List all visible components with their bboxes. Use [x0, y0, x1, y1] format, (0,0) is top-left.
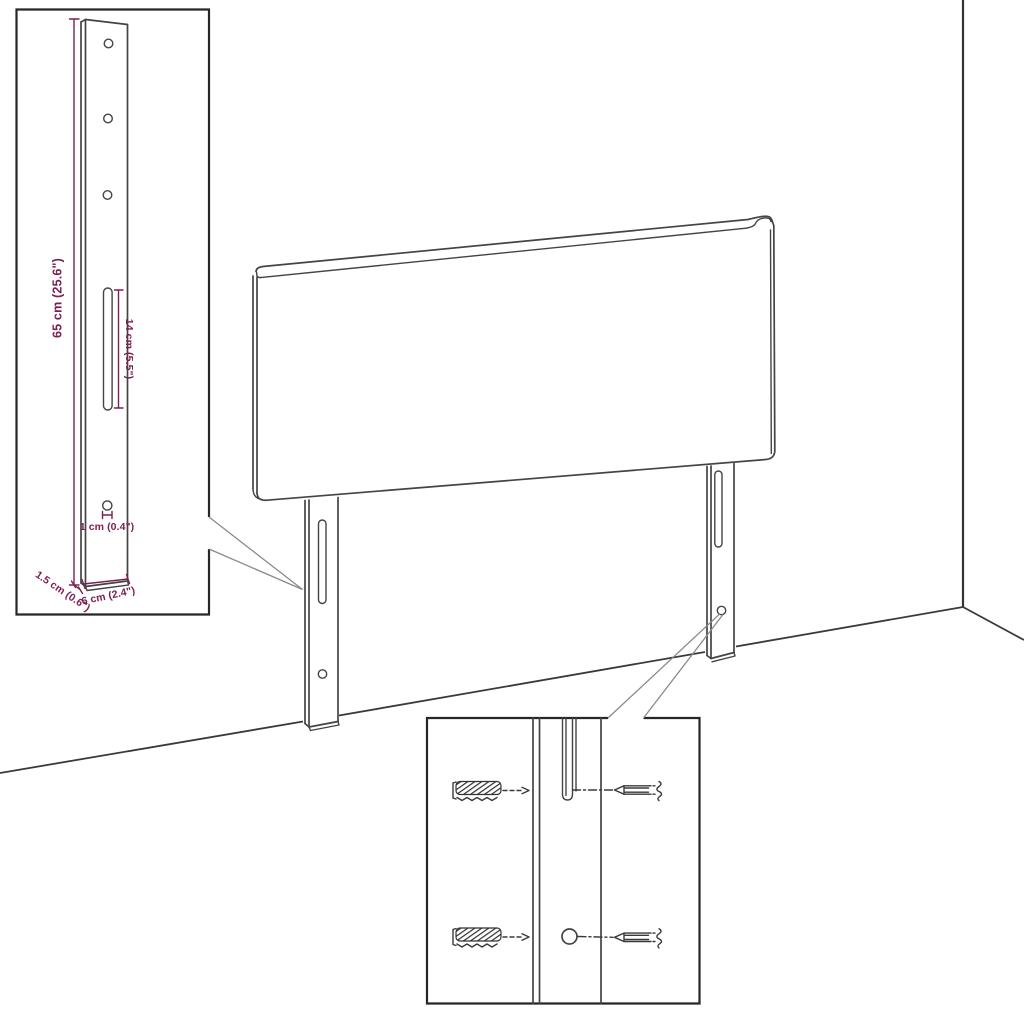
- wall-anchor-lower-icon: [453, 928, 529, 947]
- hardware-inset-frame: [427, 718, 700, 1004]
- hardware-inset-slot: [563, 718, 577, 800]
- left-mounting-leg: [305, 498, 339, 731]
- leg-detail-slot: [104, 288, 113, 410]
- hole-dimension-line: [103, 512, 113, 519]
- leg-detail-drawing: [81, 20, 129, 591]
- dimension-label-slot-length: 14 cm (5.5"): [123, 319, 135, 379]
- room-corner-lines: [0, 0, 1024, 773]
- slot-dimension-line: [115, 290, 124, 408]
- right-leg-hole: [717, 606, 725, 614]
- lower-anchor-and-screw: [453, 928, 662, 948]
- leg-detail-small-hole: [103, 501, 112, 510]
- assembly-diagram: 65 cm (25.6") 14 cm (5.5") 1 cm (0.4") 1…: [0, 0, 1024, 1024]
- assembly-diagram-page: 65 cm (25.6") 14 cm (5.5") 1 cm (0.4") 1…: [0, 0, 1024, 1024]
- leg-detail-inset: 65 cm (25.6") 14 cm (5.5") 1 cm (0.4") 1…: [17, 10, 303, 615]
- leg-detail-hole-1: [104, 39, 113, 48]
- anchor-upper-arrow: [522, 787, 529, 793]
- floor-line-right: [963, 607, 1024, 640]
- leg-detail-hole-3: [103, 191, 112, 200]
- dimension-label-hole-diameter: 1 cm (0.4"): [80, 521, 135, 533]
- upper-anchor-and-screw: [453, 782, 662, 801]
- screw-lower-leader-line: [578, 937, 613, 938]
- headboard-panel: [253, 216, 775, 500]
- hardware-detail-inset: [427, 614, 723, 1004]
- wall-anchor-upper-icon: [453, 782, 529, 801]
- left-leg-hole: [318, 670, 326, 678]
- dimension-label-leg-height: 65 cm (25.6"): [51, 258, 65, 338]
- right-leg-slot: [715, 471, 722, 547]
- hardware-inset-hole: [562, 929, 577, 944]
- leg-detail-hole-2: [104, 114, 113, 123]
- left-leg-slot: [319, 520, 327, 604]
- anchor-lower-arrow: [522, 934, 529, 940]
- leg-detail-callout-lines: [209, 517, 303, 590]
- hardware-inset-leg-strip: [533, 718, 601, 1004]
- floor-line-left: [0, 607, 963, 773]
- screw-upper-icon: [615, 782, 662, 801]
- screw-lower-icon: [615, 929, 662, 948]
- height-dimension-line: [70, 19, 80, 585]
- right-mounting-leg: [707, 464, 735, 662]
